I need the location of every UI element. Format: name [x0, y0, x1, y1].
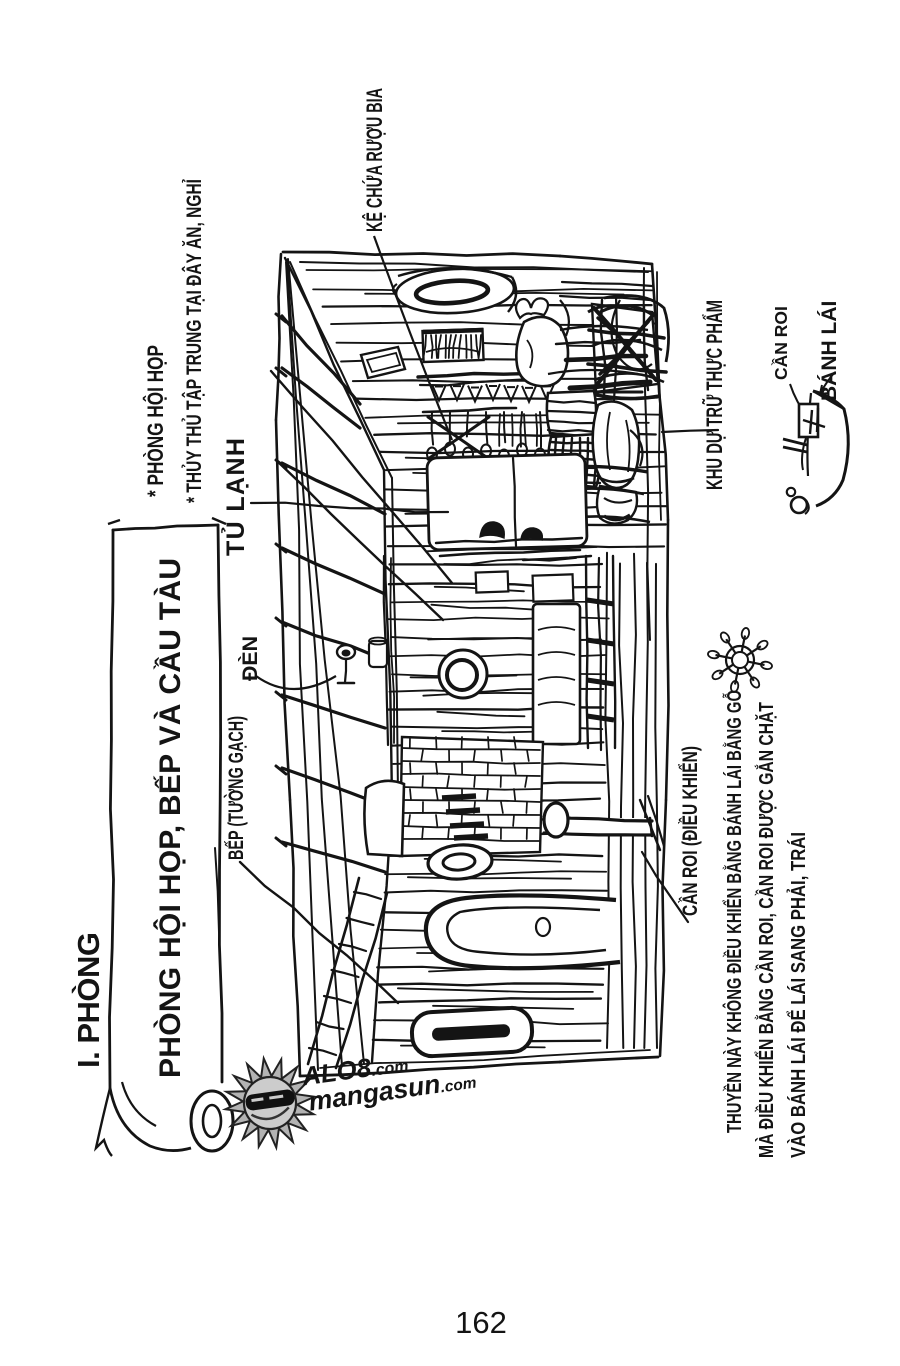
svg-text:* THỦY THỦ TẬP TRUNG TẠI ĐÂY Ă: * THỦY THỦ TẬP TRUNG TẠI ĐÂY ĂN, NGHỈ — [182, 179, 206, 503]
svg-text:TỦ LẠNH: TỦ LẠNH — [220, 438, 250, 556]
svg-text:I. PHÒNG: I. PHÒNG — [70, 932, 106, 1068]
svg-text:KHU DỰ TRỮ THỰC PHẨM: KHU DỰ TRỮ THỰC PHẨM — [702, 300, 727, 490]
svg-text:* PHÒNG HỘI HỌP: * PHÒNG HỘI HỌP — [143, 345, 168, 497]
svg-text:KỆ CHỨA RƯỢU BIA: KỆ CHỨA RƯỢU BIA — [362, 88, 387, 232]
svg-text:VÀO BÁNH LÁI ĐỂ LÁI SANG PHẢI,: VÀO BÁNH LÁI ĐỂ LÁI SANG PHẢI, TRÁI — [787, 832, 810, 1158]
svg-text:MÀ ĐIỀU KHIỂN BẰNG CẦN ROI, CẦ: MÀ ĐIỀU KHIỂN BẰNG CẦN ROI, CẦN ROI ĐƯỢC… — [754, 702, 778, 1158]
svg-text:ĐÈN: ĐÈN — [239, 636, 262, 681]
svg-text:CẦN ROI: CẦN ROI — [770, 306, 791, 380]
svg-text:BẾP (TƯỜNG GẠCH): BẾP (TƯỜNG GẠCH) — [224, 716, 248, 860]
svg-text:162: 162 — [455, 1305, 507, 1340]
svg-text:THUYỀN NÀY KHÔNG ĐIỀU KHIỂN BẰ: THUYỀN NÀY KHÔNG ĐIỀU KHIỂN BẰNG BÁNH LÁ… — [722, 690, 746, 1133]
svg-text:PHÒNG HỘI HỌP, BẾP VÀ CẦU TÀU: PHÒNG HỘI HỌP, BẾP VÀ CẦU TÀU — [153, 558, 187, 1078]
svg-text:BÁNH LÁI: BÁNH LÁI — [818, 301, 841, 401]
svg-text:CẦN ROI (ĐIỀU KHIỂN): CẦN ROI (ĐIỀU KHIỂN) — [679, 746, 702, 916]
